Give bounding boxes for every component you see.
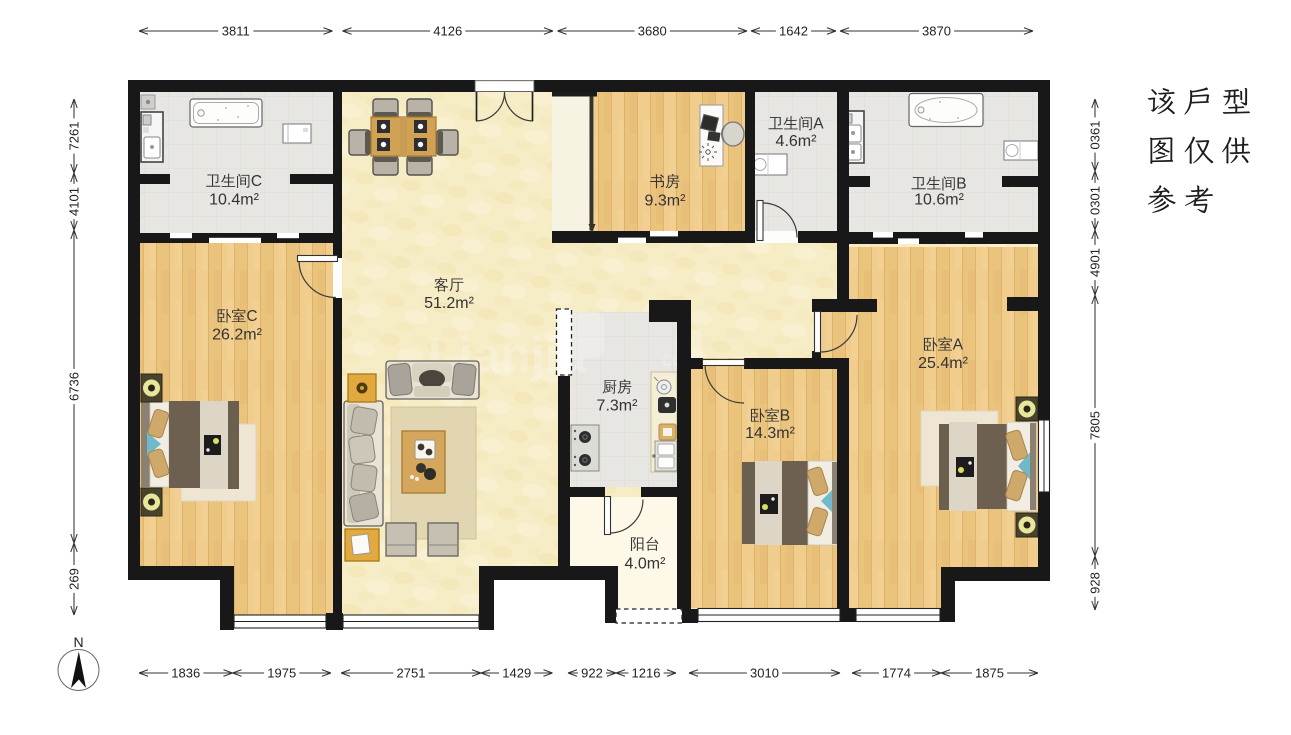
svg-text:1774: 1774 [882,666,911,681]
svg-text:C: C [251,173,262,190]
svg-text:A: A [813,116,824,133]
svg-text:4.6m²: 4.6m² [776,133,818,150]
svg-text:6736: 6736 [67,372,82,401]
svg-text:7.3m²: 7.3m² [597,398,639,415]
svg-text:1975: 1975 [267,666,296,681]
svg-text:14.3m²: 14.3m² [745,425,795,442]
svg-text:2751: 2751 [397,666,426,681]
svg-text:B: B [780,408,790,425]
svg-text:0301: 0301 [1088,186,1103,215]
svg-text:51.2m²: 51.2m² [424,295,474,312]
svg-text:A: A [953,337,964,354]
svg-text:7261: 7261 [67,122,82,151]
svg-text:922: 922 [581,666,603,681]
svg-text:0361: 0361 [1088,121,1103,150]
svg-text:4901: 4901 [1088,248,1103,277]
svg-text:N: N [73,634,83,650]
svg-text:928: 928 [1088,572,1103,594]
svg-text:10.6m²: 10.6m² [914,192,964,209]
svg-text:3811: 3811 [222,24,250,39]
svg-text:1216: 1216 [632,666,661,681]
svg-text:269: 269 [67,568,82,590]
svg-text:B: B [956,176,966,193]
svg-text:3010: 3010 [750,666,779,681]
svg-text:4.0m²: 4.0m² [625,556,667,573]
svg-text:1836: 1836 [171,666,200,681]
svg-text:10.4m²: 10.4m² [209,192,259,209]
svg-text:1429: 1429 [502,666,531,681]
svg-text:C: C [246,308,257,325]
svg-text:9.3m²: 9.3m² [645,193,687,210]
svg-text:26.2m²: 26.2m² [212,327,262,344]
svg-text:1875: 1875 [975,666,1004,681]
svg-text:25.4m²: 25.4m² [918,355,968,372]
svg-text:3870: 3870 [922,24,951,39]
svg-text:4101: 4101 [67,187,82,216]
svg-text:4126: 4126 [433,24,462,39]
svg-text:7805: 7805 [1088,411,1103,440]
svg-text:1642: 1642 [779,24,808,39]
svg-text:3680: 3680 [638,24,667,39]
